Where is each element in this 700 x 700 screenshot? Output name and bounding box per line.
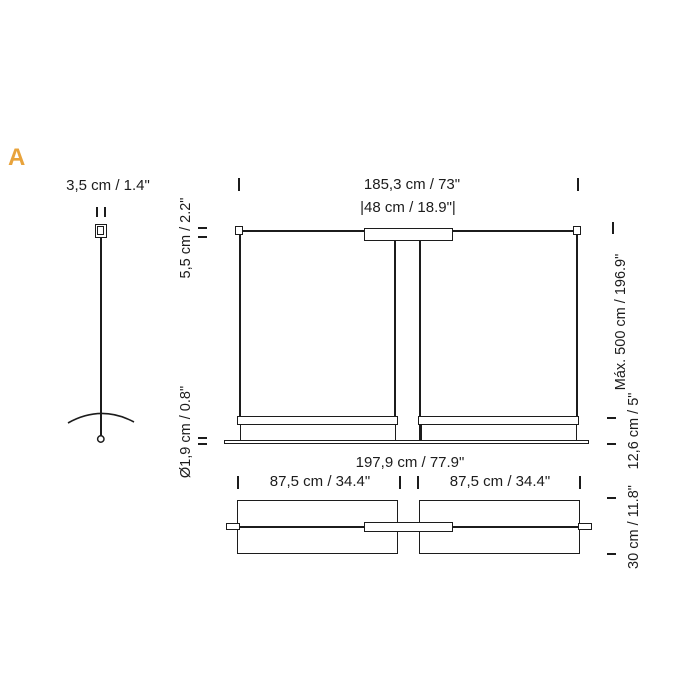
cable-left bbox=[239, 235, 241, 417]
cable-stub-right bbox=[578, 523, 592, 530]
cable-stub-left bbox=[226, 523, 240, 530]
canopy bbox=[364, 228, 453, 241]
canopy-width-label: |48 cm / 18.9"| bbox=[318, 200, 498, 216]
canopy-height-label: 5,5 cm / 2.2" bbox=[177, 183, 195, 293]
overall-width-tick-right bbox=[577, 178, 579, 191]
center-stem-line-left bbox=[394, 240, 396, 441]
depth-tick-bottom bbox=[607, 553, 616, 555]
driver-box-left bbox=[240, 424, 396, 441]
depth-label: 30 cm / 11.8" bbox=[625, 467, 643, 587]
light-bar-right bbox=[418, 416, 579, 425]
canopy-height-tick-top bbox=[198, 227, 207, 229]
bar-height-tick-top bbox=[607, 417, 616, 419]
diffuser-width-label: 197,9 cm / 77.9" bbox=[310, 455, 510, 471]
panel-width-label-left: 87,5 cm / 34.4" bbox=[230, 474, 410, 490]
suspension-line-left bbox=[241, 230, 364, 232]
panel-width-label-right: 87,5 cm / 34.4" bbox=[410, 474, 590, 490]
cable-end-circle bbox=[98, 436, 104, 442]
suspension-line-right bbox=[453, 230, 577, 232]
overall-width-label: 185,3 cm / 73" bbox=[312, 177, 512, 193]
rod-diameter-tick-top bbox=[198, 437, 207, 439]
cable-right bbox=[576, 235, 578, 417]
overall-width-tick-left bbox=[238, 178, 240, 191]
cable-width-tick-right bbox=[104, 207, 106, 217]
suspension-gripper-left bbox=[235, 226, 243, 235]
center-stem-line-right bbox=[419, 240, 421, 441]
cable-width-label: 3,5 cm / 1.4" bbox=[28, 178, 188, 194]
bottom-rod bbox=[224, 440, 589, 444]
rod-diameter-tick-bottom bbox=[198, 443, 207, 445]
top-view-canopy bbox=[364, 522, 453, 532]
depth-tick-top bbox=[607, 497, 616, 499]
cable-gripper-inner bbox=[97, 226, 104, 235]
driver-box-right bbox=[421, 424, 577, 441]
bar-height-tick-bottom bbox=[607, 443, 616, 445]
dimension-diagram: A 3,5 cm / 1.4" 185,3 cm / 73" |48 cm / … bbox=[0, 0, 700, 700]
cable-width-tick-left bbox=[96, 207, 98, 217]
section-label: A bbox=[8, 146, 25, 170]
canopy-height-tick-bottom bbox=[198, 236, 207, 238]
suspension-gripper-right bbox=[573, 226, 581, 235]
ceiling-arc bbox=[58, 404, 144, 448]
rod-diameter-label: Ø1,9 cm / 0.8" bbox=[177, 367, 195, 497]
light-bar-left bbox=[237, 416, 398, 425]
